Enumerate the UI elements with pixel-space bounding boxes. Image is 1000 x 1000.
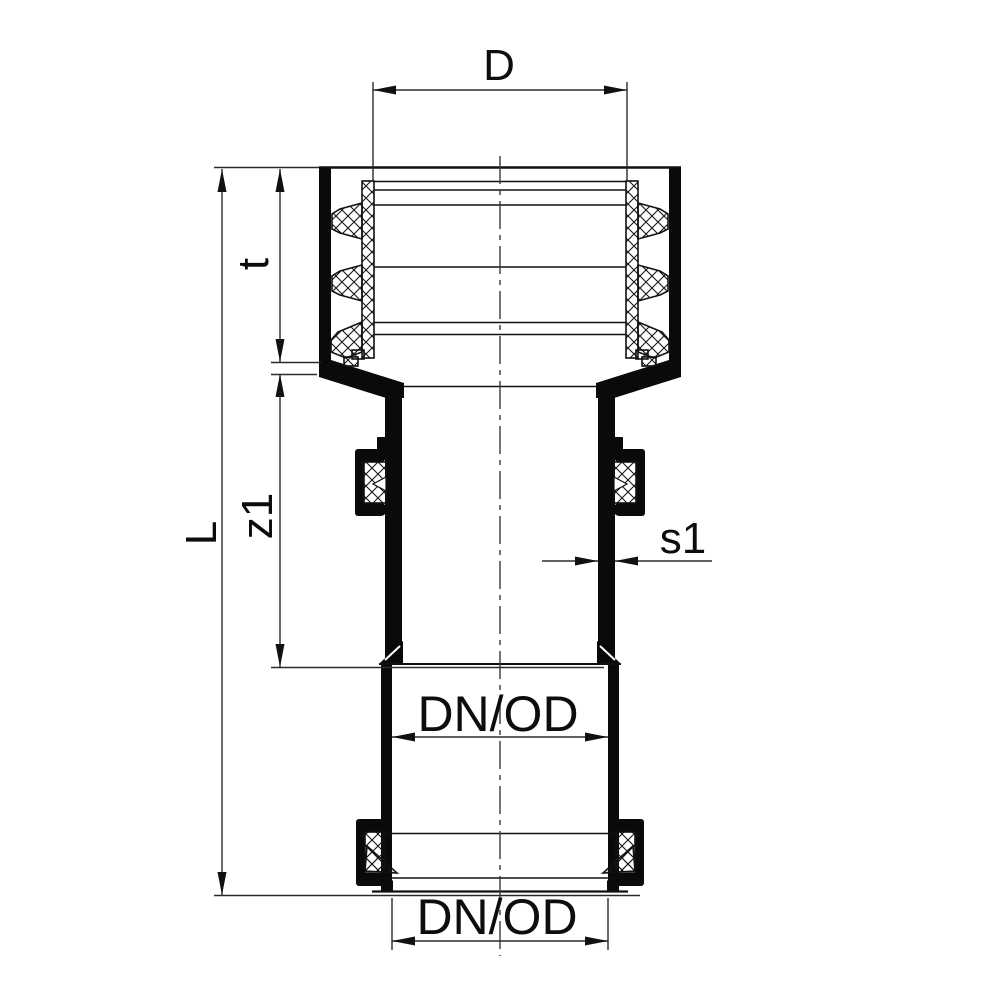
arrow-s1-right bbox=[615, 557, 638, 566]
dim-label-dnod-upper: DN/OD bbox=[417, 686, 578, 742]
arrow-dnod-upper-right bbox=[585, 733, 608, 742]
arrow-dnod-upper-left bbox=[392, 733, 415, 742]
drawing-page: D t z1 L s1 DN/OD DN/OD bbox=[0, 0, 1000, 1000]
arrow-L-top bbox=[218, 169, 227, 192]
arrow-L-bottom bbox=[218, 872, 227, 895]
arrow-D-left bbox=[373, 86, 396, 95]
gasket-lobe-1 bbox=[332, 203, 362, 239]
arrow-t-top bbox=[276, 169, 285, 192]
arrow-t-bottom bbox=[276, 339, 285, 362]
dim-label-s1: s1 bbox=[660, 514, 706, 563]
arrow-z1-bottom bbox=[276, 644, 285, 667]
fitting-left-half bbox=[319, 167, 404, 892]
seal-ring-housing bbox=[355, 449, 386, 516]
housing-bottom-arm bbox=[355, 503, 386, 516]
arrow-s1-left bbox=[575, 557, 598, 566]
gasket-lobe-2 bbox=[332, 265, 362, 301]
dim-label-dnod-lower: DN/OD bbox=[416, 889, 577, 945]
pipe-fitting-drawing: D t z1 L s1 DN/OD DN/OD bbox=[0, 0, 1000, 1000]
mouth-housing-bottom-arm bbox=[356, 873, 386, 886]
gasket-step-2 bbox=[344, 357, 358, 366]
dim-label-D: D bbox=[483, 41, 515, 90]
spigot-wall bbox=[385, 384, 402, 661]
gasket-strip bbox=[362, 181, 374, 358]
arrow-z1-top bbox=[276, 374, 285, 397]
arrow-dnod-lower-left bbox=[392, 937, 415, 946]
dim-label-L: L bbox=[177, 521, 226, 545]
arrow-dnod-lower-right bbox=[585, 937, 608, 946]
dim-label-t: t bbox=[229, 258, 278, 270]
dim-label-z1: z1 bbox=[233, 493, 282, 539]
arrow-D-right bbox=[604, 86, 627, 95]
socket-outer-wall bbox=[319, 167, 331, 375]
socket-gasket bbox=[331, 181, 374, 366]
